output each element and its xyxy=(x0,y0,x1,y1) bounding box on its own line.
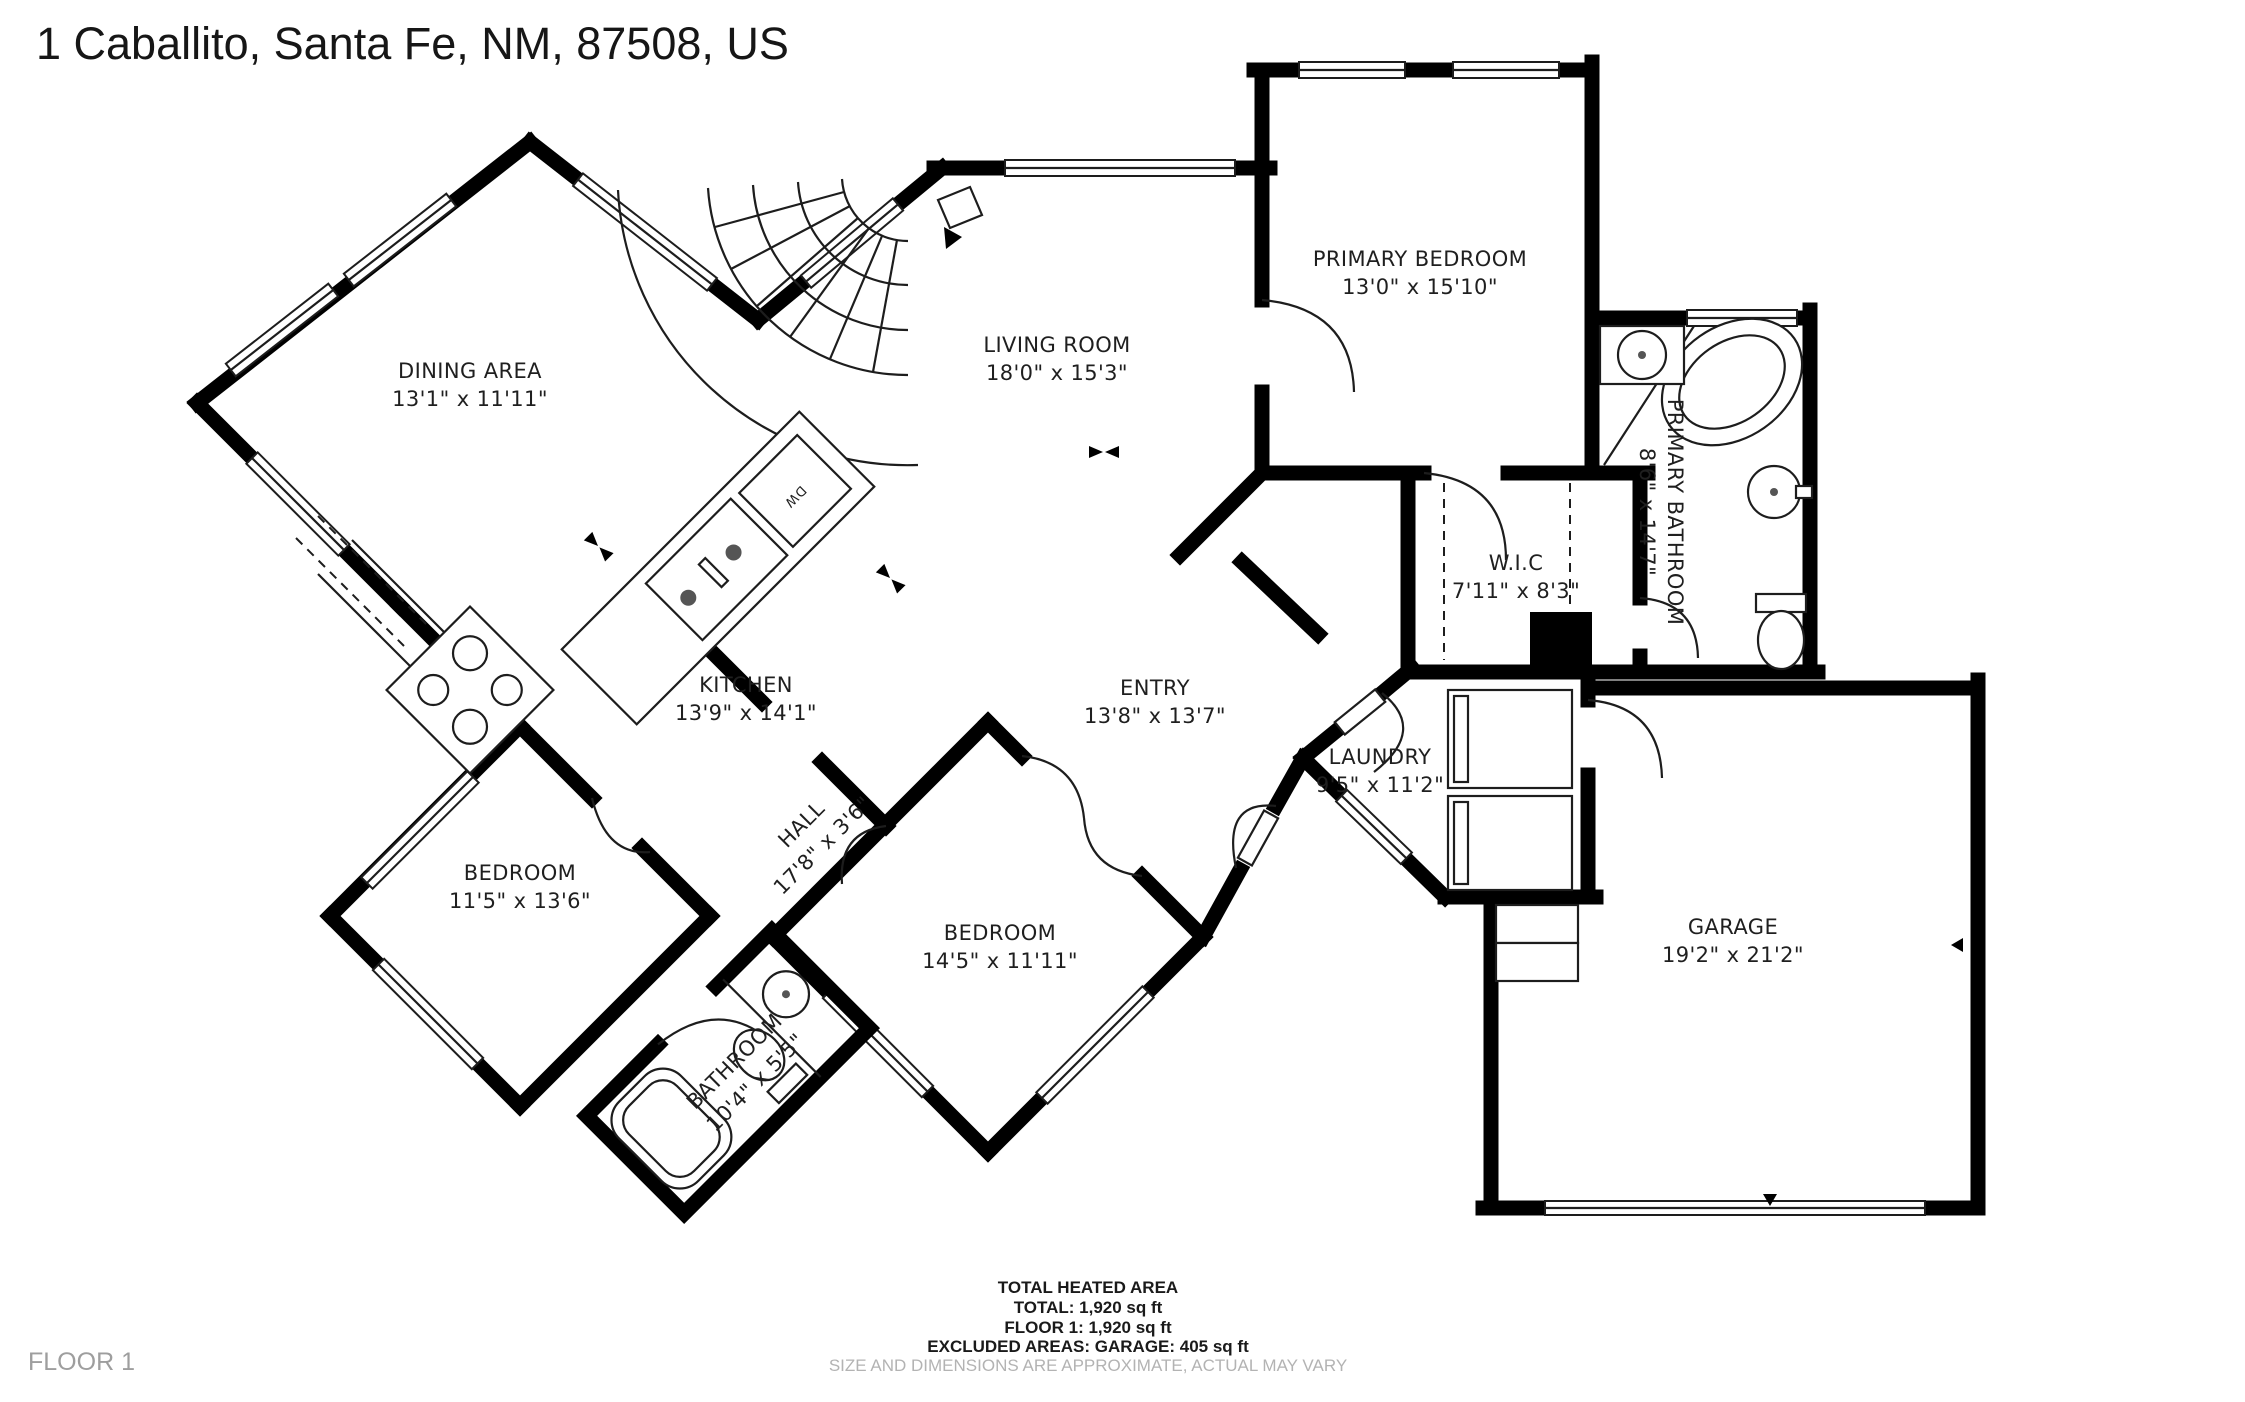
svg-text:9'5" x 11'2": 9'5" x 11'2" xyxy=(1316,773,1444,797)
footer-floor1-total: FLOOR 1: 1,920 sq ft xyxy=(1004,1318,1171,1338)
svg-text:11'5" x 13'6": 11'5" x 13'6" xyxy=(449,889,591,913)
svg-text:DINING AREA: DINING AREA xyxy=(398,359,542,383)
primary-sink-1 xyxy=(1600,326,1684,384)
svg-text:7'11" x 8'3": 7'11" x 8'3" xyxy=(1452,579,1580,603)
washer-dryer xyxy=(1448,690,1572,890)
room-label-laundry: LAUNDRY 9'5" x 11'2" xyxy=(1316,745,1444,797)
footer-total-heated-area: TOTAL HEATED AREA xyxy=(998,1278,1178,1298)
svg-text:13'0" x 15'10": 13'0" x 15'10" xyxy=(1342,275,1498,299)
svg-text:14'5" x 11'11": 14'5" x 11'11" xyxy=(922,949,1078,973)
room-label-bedroom-1: BEDROOM 11'5" x 13'6" xyxy=(449,861,591,913)
primary-sink-2 xyxy=(1748,466,1812,518)
svg-text:BEDROOM: BEDROOM xyxy=(944,921,1056,945)
footer-disclaimer: SIZE AND DIMENSIONS ARE APPROXIMATE, ACT… xyxy=(829,1356,1347,1376)
room-label-kitchen: KITCHEN 13'9" x 14'1" xyxy=(675,673,817,725)
svg-text:ENTRY: ENTRY xyxy=(1120,676,1190,700)
svg-text:GARAGE: GARAGE xyxy=(1688,915,1778,939)
svg-text:KITCHEN: KITCHEN xyxy=(699,673,793,697)
svg-text:PRIMARY BATHROOM: PRIMARY BATHROOM xyxy=(1663,399,1687,626)
svg-text:BEDROOM: BEDROOM xyxy=(464,861,576,885)
room-label-bedroom-2: BEDROOM 14'5" x 11'11" xyxy=(922,921,1078,973)
svg-text:LIVING ROOM: LIVING ROOM xyxy=(983,333,1130,357)
floor-plan-svg: DW xyxy=(0,0,2245,1402)
room-label-primary-bedroom: PRIMARY BEDROOM 13'0" x 15'10" xyxy=(1313,247,1527,299)
footer-total: TOTAL: 1,920 sq ft xyxy=(1014,1298,1163,1318)
svg-text:13'9" x 14'1": 13'9" x 14'1" xyxy=(675,701,817,725)
garage-door xyxy=(1545,1201,1925,1215)
svg-text:PRIMARY BEDROOM: PRIMARY BEDROOM xyxy=(1313,247,1527,271)
room-label-living: LIVING ROOM 18'0" x 15'3" xyxy=(983,333,1130,385)
svg-text:13'8" x 13'7": 13'8" x 13'7" xyxy=(1084,704,1226,728)
svg-text:W.I.C: W.I.C xyxy=(1489,551,1544,575)
room-label-wic: W.I.C 7'11" x 8'3" xyxy=(1452,551,1580,603)
svg-text:LAUNDRY: LAUNDRY xyxy=(1329,745,1432,769)
svg-text:19'2" x 21'2": 19'2" x 21'2" xyxy=(1662,943,1804,967)
garage-steps xyxy=(1496,905,1578,981)
floor-label: FLOOR 1 xyxy=(28,1348,135,1377)
room-label-entry: ENTRY 13'8" x 13'7" xyxy=(1084,676,1226,728)
svg-text:18'0" x 15'3": 18'0" x 15'3" xyxy=(986,361,1128,385)
primary-toilet xyxy=(1756,594,1806,669)
svg-text:13'1" x 11'11": 13'1" x 11'11" xyxy=(392,387,548,411)
room-label-dining: DINING AREA 13'1" x 11'11" xyxy=(392,359,548,411)
footer-excluded-areas: EXCLUDED AREAS: GARAGE: 405 sq ft xyxy=(927,1337,1248,1357)
wic-black-block xyxy=(1530,612,1592,670)
room-label-garage: GARAGE 19'2" x 21'2" xyxy=(1662,915,1804,967)
svg-text:8'6" x 14'7": 8'6" x 14'7" xyxy=(1635,448,1659,576)
